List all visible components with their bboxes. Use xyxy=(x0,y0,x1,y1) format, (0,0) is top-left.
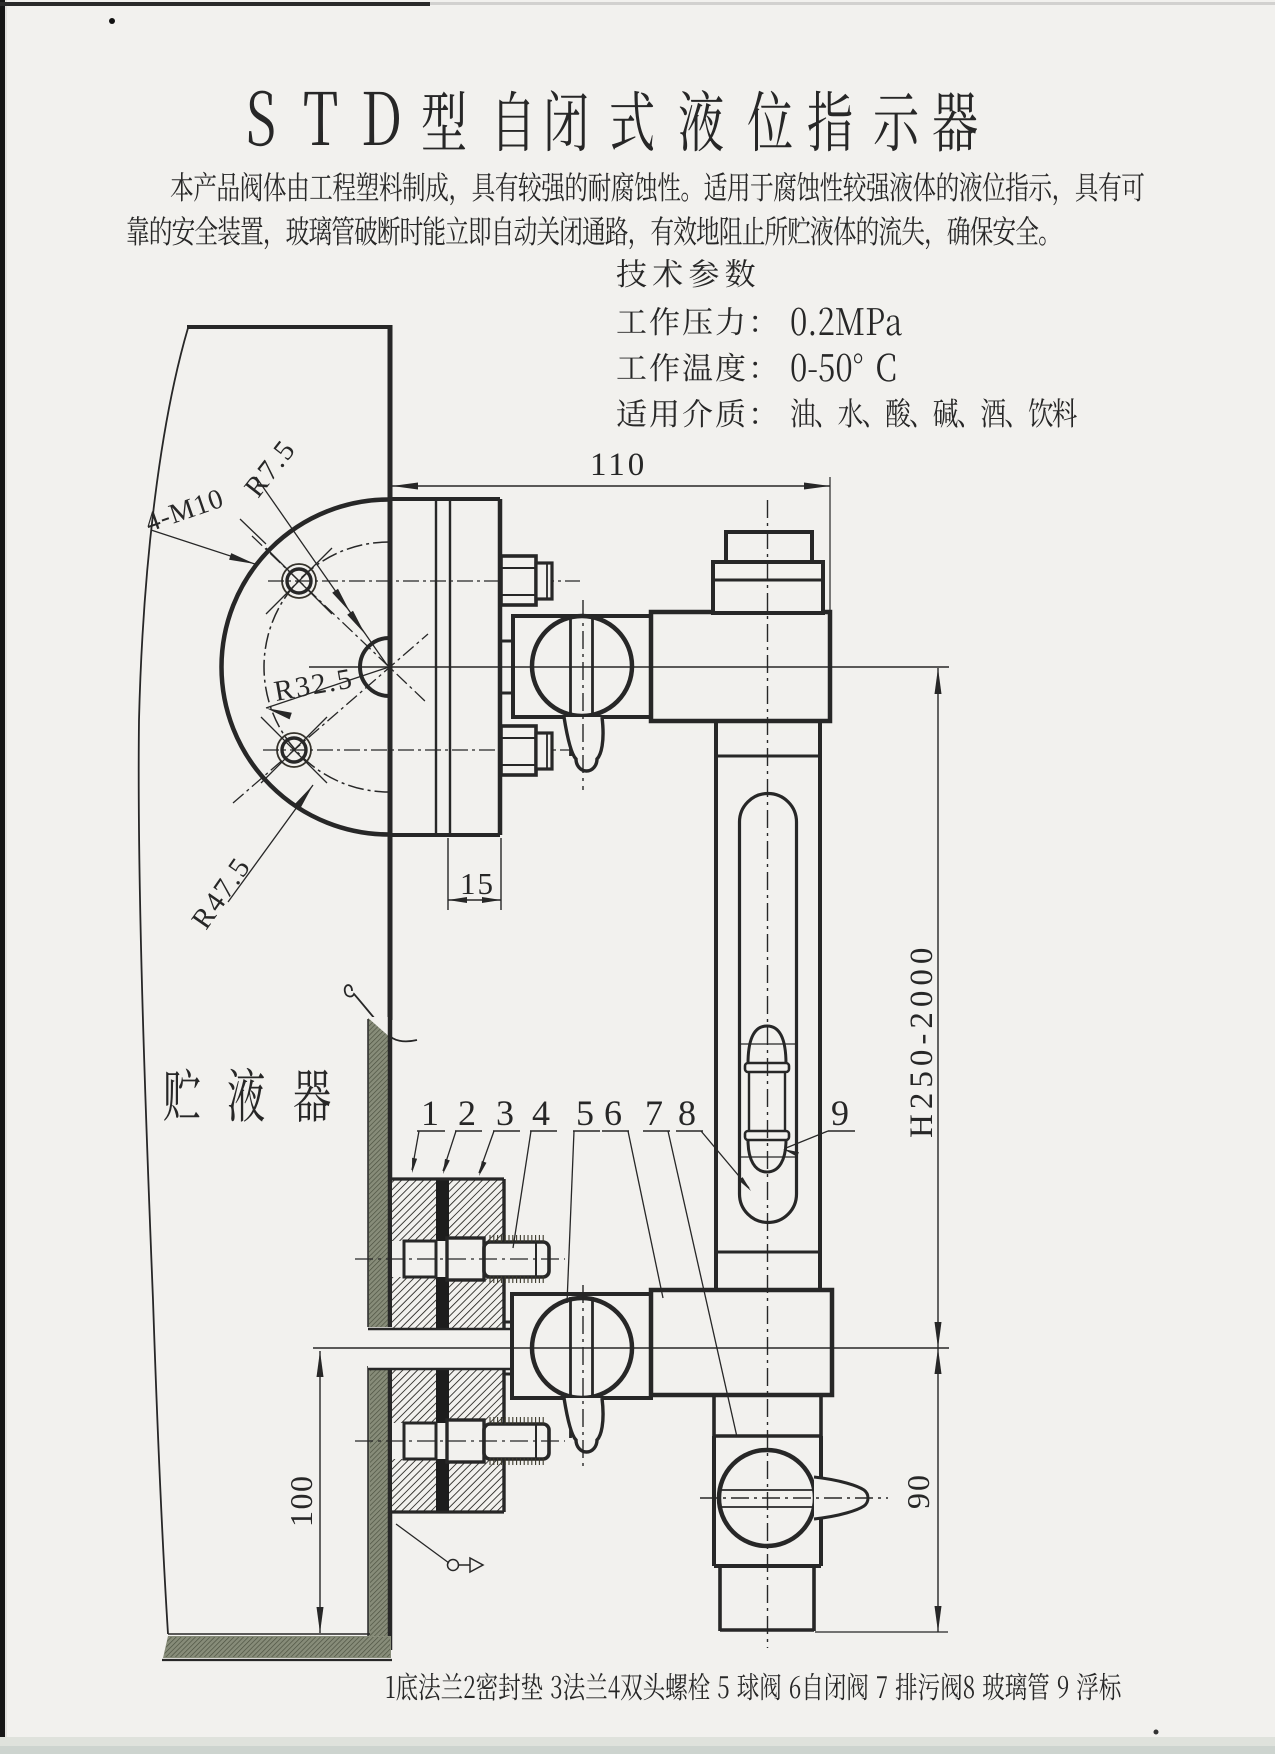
svg-text:4: 4 xyxy=(532,1093,550,1133)
svg-text:1: 1 xyxy=(421,1093,439,1133)
svg-text:H250-2000: H250-2000 xyxy=(904,943,940,1138)
svg-text:3: 3 xyxy=(496,1093,514,1133)
svg-text:8: 8 xyxy=(678,1093,696,1133)
svg-text:9: 9 xyxy=(831,1093,849,1133)
svg-text:6: 6 xyxy=(604,1093,622,1133)
svg-text:110: 110 xyxy=(590,447,647,483)
svg-text:15: 15 xyxy=(460,866,495,901)
svg-text:7: 7 xyxy=(645,1093,663,1133)
svg-text:100: 100 xyxy=(283,1475,319,1528)
svg-text:90: 90 xyxy=(900,1473,936,1509)
svg-text:5: 5 xyxy=(576,1093,594,1133)
svg-text:2: 2 xyxy=(458,1093,476,1133)
